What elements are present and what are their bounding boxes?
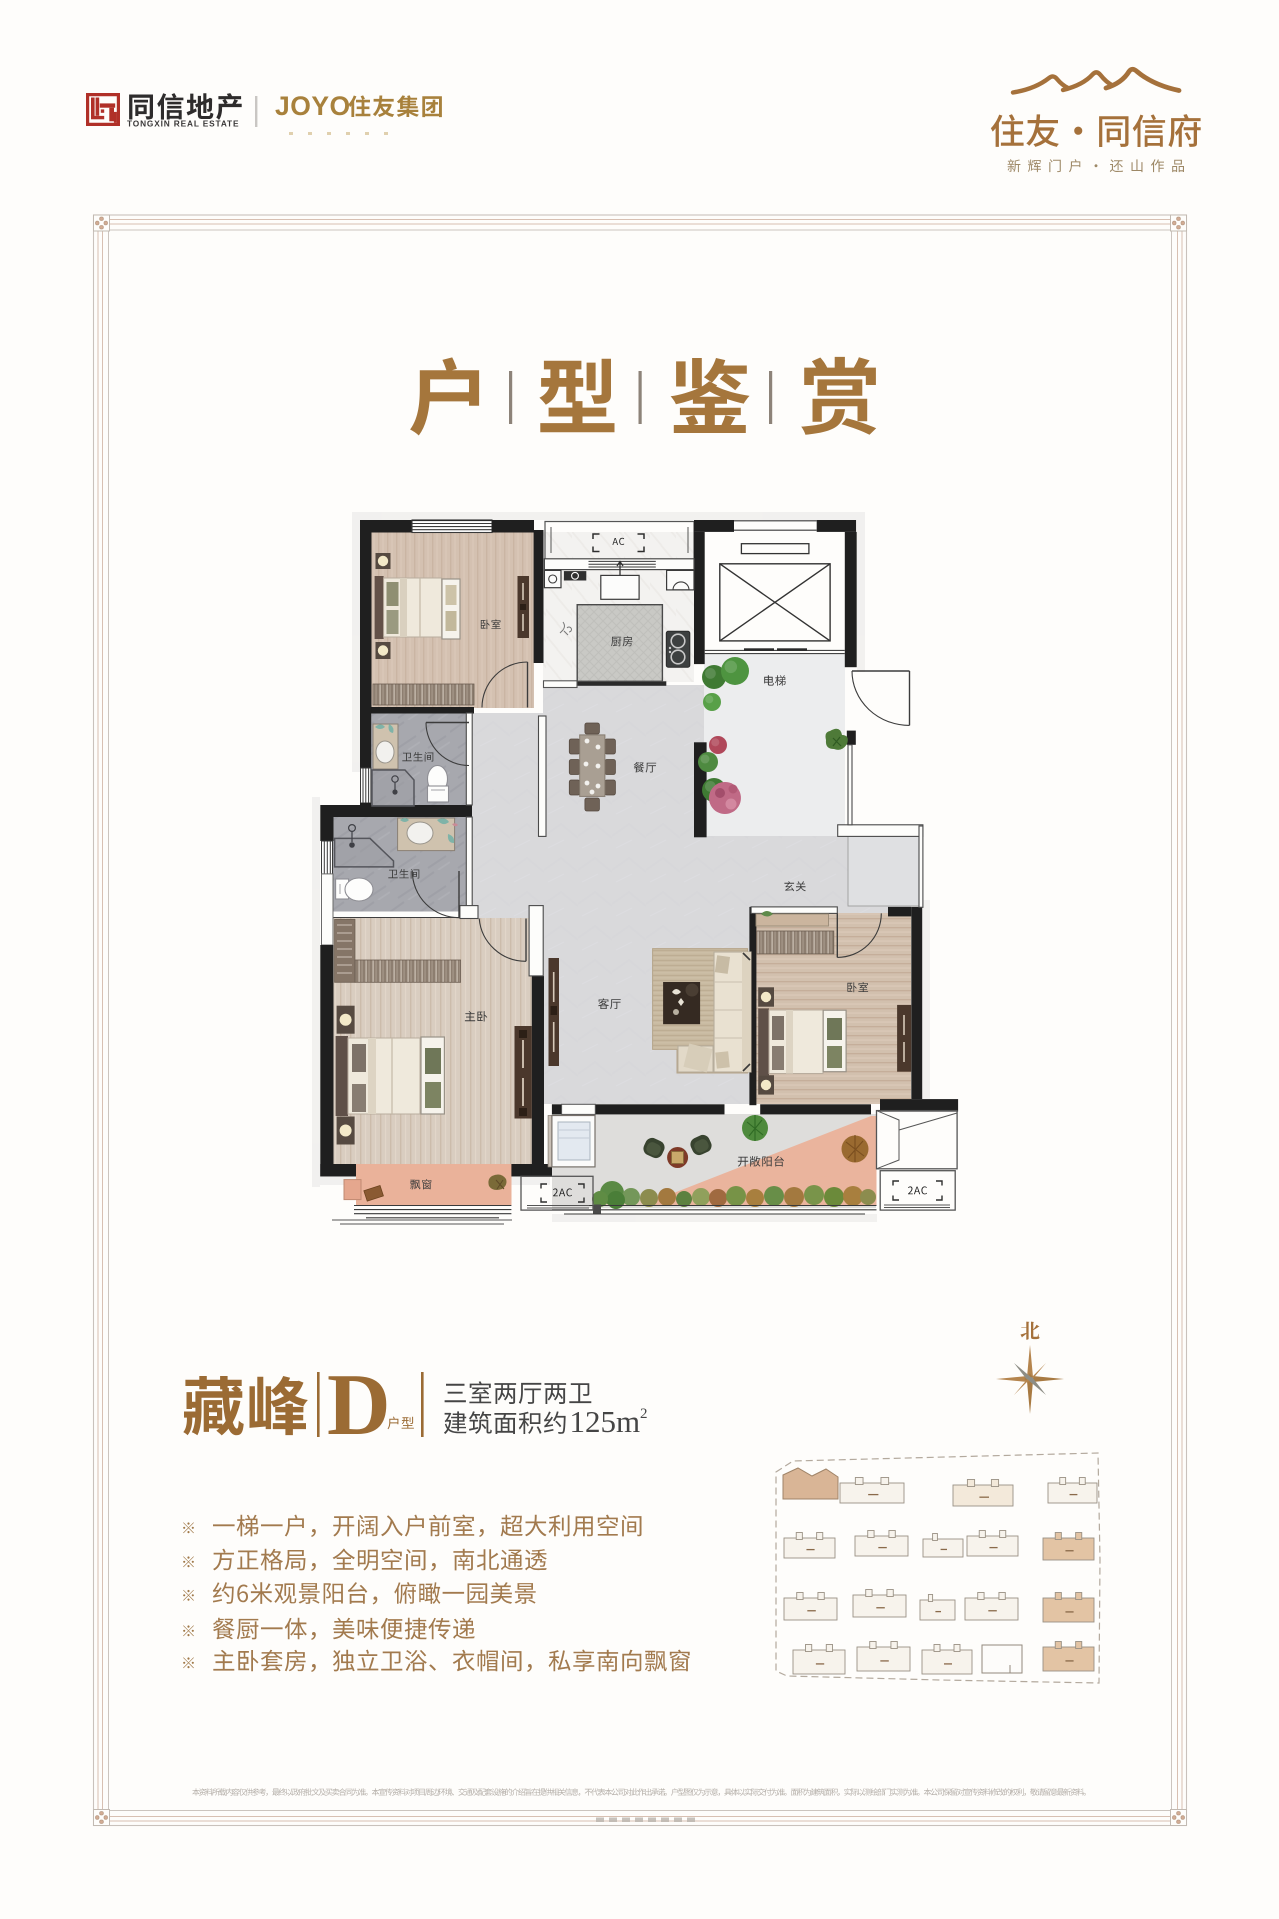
svg-text:JOYO: JOYO [275, 91, 351, 121]
svg-text:D: D [327, 1357, 391, 1454]
svg-text:2: 2 [640, 1406, 648, 1422]
svg-text:125m: 125m [570, 1404, 641, 1439]
svg-text:TONGXIN REAL ESTATE: TONGXIN REAL ESTATE [127, 119, 239, 129]
